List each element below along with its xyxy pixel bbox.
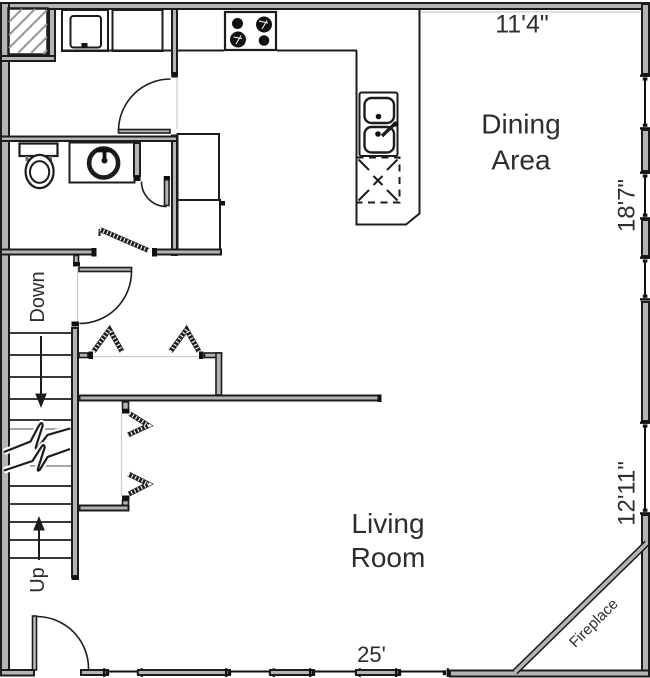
svg-text:Living: Living <box>351 508 424 539</box>
svg-text:18'7": 18'7" <box>614 179 641 232</box>
svg-text:Down: Down <box>27 271 49 322</box>
svg-text:12'11": 12'11" <box>614 461 641 526</box>
svg-text:11'4": 11'4" <box>495 11 549 39</box>
svg-text:Area: Area <box>491 145 551 176</box>
svg-text:Room: Room <box>351 542 426 573</box>
svg-text:Dining: Dining <box>481 109 560 140</box>
svg-text:Up: Up <box>27 567 49 593</box>
svg-text:25': 25' <box>357 642 386 667</box>
